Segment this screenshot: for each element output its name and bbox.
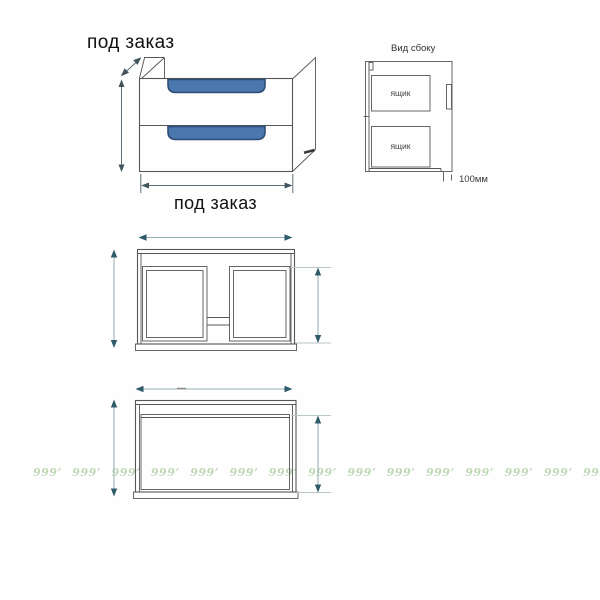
- custom-order-label-bottom: под заказ: [174, 193, 257, 214]
- side-view-title: Вид сбоку: [391, 43, 435, 54]
- text-layer: под заказ под заказ Вид сбоку ящик ящик …: [0, 0, 600, 600]
- drawer-top-label: ящик: [371, 88, 430, 98]
- offset-dimension-label: 100мм: [459, 174, 488, 185]
- custom-order-label-top: под заказ: [87, 32, 174, 54]
- drawer-bottom-label: ящик: [371, 141, 430, 151]
- technical-drawing-page: 999’999’999’999’999’999’999’999’999’999’…: [0, 0, 600, 600]
